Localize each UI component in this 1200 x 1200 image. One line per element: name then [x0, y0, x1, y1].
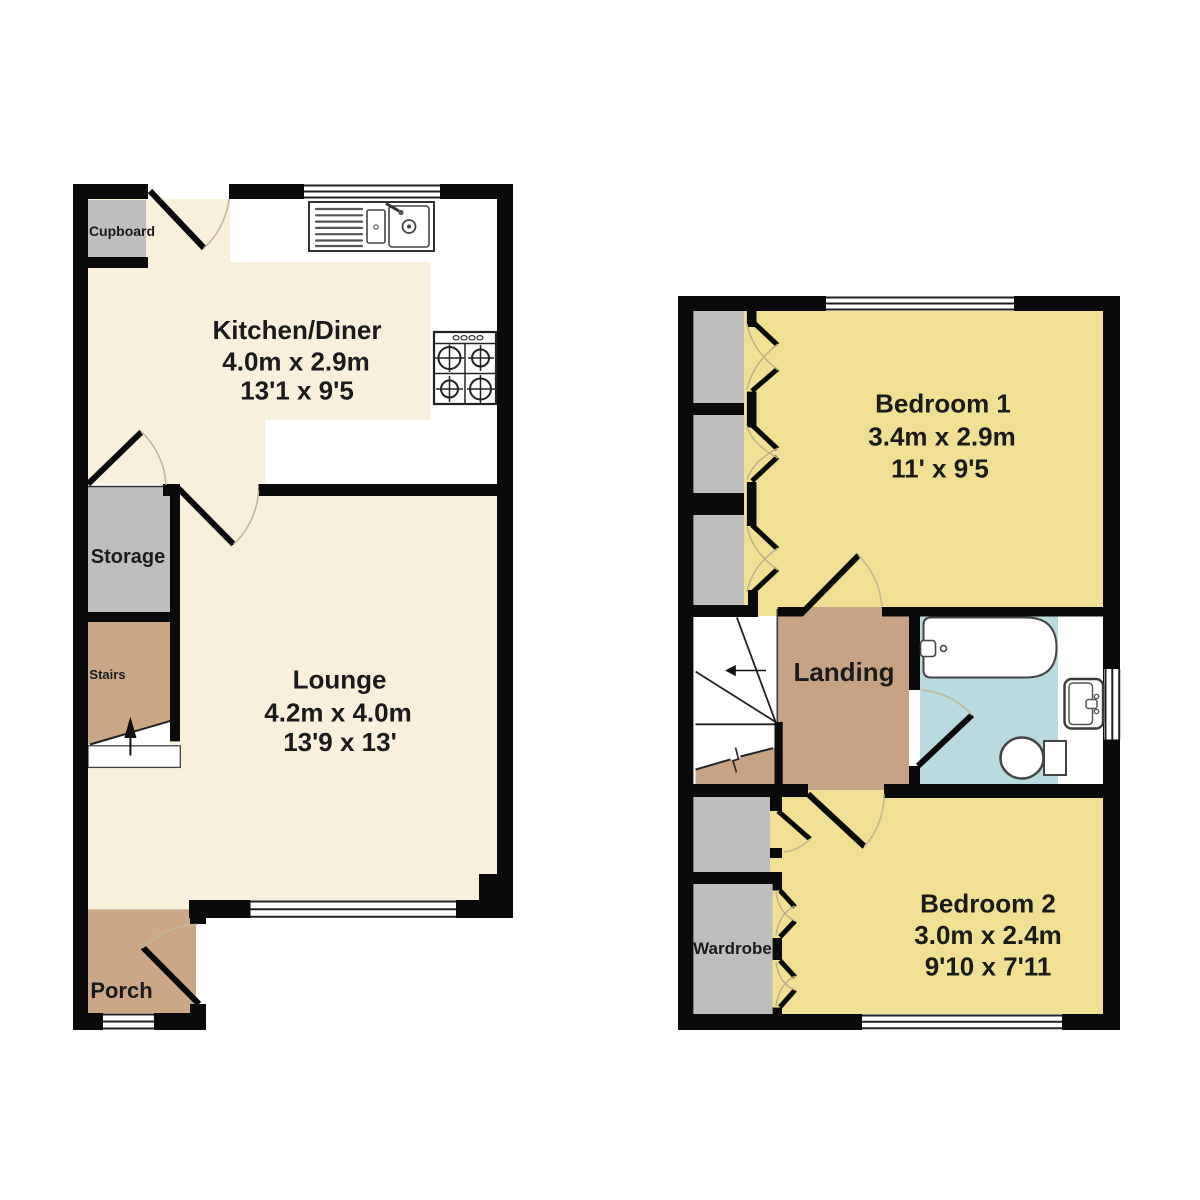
svg-text:Stairs: Stairs	[89, 667, 125, 682]
svg-text:9'10 x 7'11: 9'10 x 7'11	[925, 952, 1052, 982]
svg-text:Storage: Storage	[91, 546, 165, 568]
svg-text:4.0m x 2.9m: 4.0m x 2.9m	[222, 347, 369, 377]
svg-text:3.0m x 2.4m: 3.0m x 2.4m	[914, 920, 1061, 950]
svg-text:Cupboard: Cupboard	[89, 223, 155, 239]
svg-text:3.4m x 2.9m: 3.4m x 2.9m	[868, 422, 1015, 452]
svg-text:Lounge: Lounge	[293, 665, 387, 695]
svg-text:Landing: Landing	[793, 657, 894, 687]
svg-text:Bedroom 1: Bedroom 1	[875, 389, 1011, 419]
svg-text:13'1 x 9'5: 13'1 x 9'5	[240, 376, 354, 406]
svg-text:Porch: Porch	[90, 978, 152, 1003]
svg-text:Kitchen/Diner: Kitchen/Diner	[212, 315, 381, 345]
svg-text:Bedroom 2: Bedroom 2	[920, 889, 1056, 919]
svg-text:11' x 9'5: 11' x 9'5	[891, 454, 989, 484]
svg-text:13'9 x 13': 13'9 x 13'	[283, 727, 397, 757]
svg-text:4.2m x 4.0m: 4.2m x 4.0m	[264, 698, 411, 728]
svg-text:Wardrobe: Wardrobe	[693, 939, 772, 958]
